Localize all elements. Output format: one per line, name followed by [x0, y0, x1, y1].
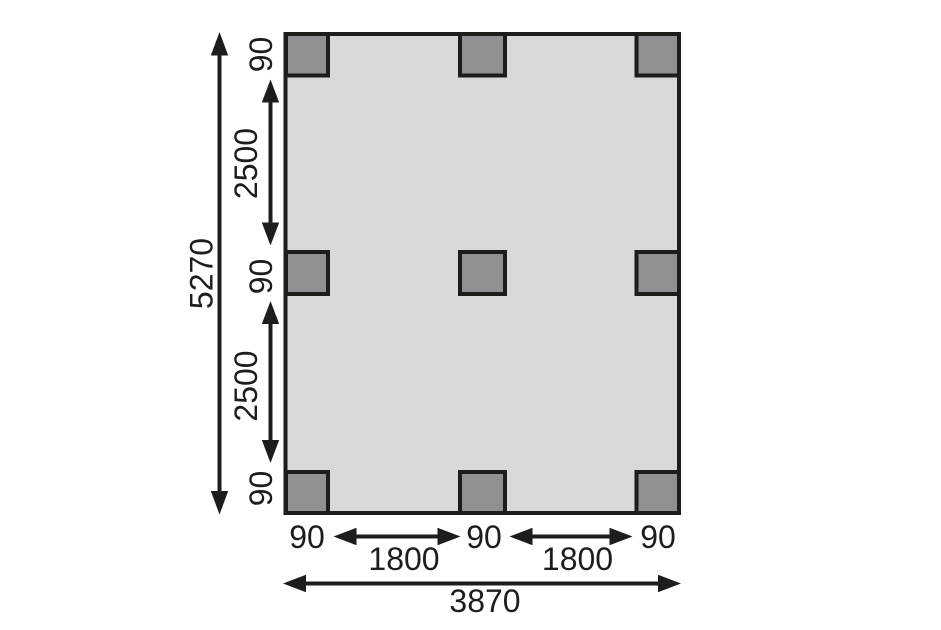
svg-text:3870: 3870	[449, 583, 520, 619]
svg-text:1800: 1800	[368, 541, 439, 577]
svg-text:1800: 1800	[542, 541, 613, 577]
svg-text:90: 90	[243, 37, 279, 73]
svg-text:2500: 2500	[228, 128, 264, 199]
svg-text:90: 90	[640, 519, 676, 555]
svg-text:2500: 2500	[228, 350, 264, 421]
svg-text:90: 90	[289, 519, 325, 555]
svg-text:90: 90	[243, 259, 279, 295]
svg-text:90: 90	[243, 471, 279, 507]
svg-text:90: 90	[466, 519, 502, 555]
svg-text:5270: 5270	[183, 238, 219, 309]
